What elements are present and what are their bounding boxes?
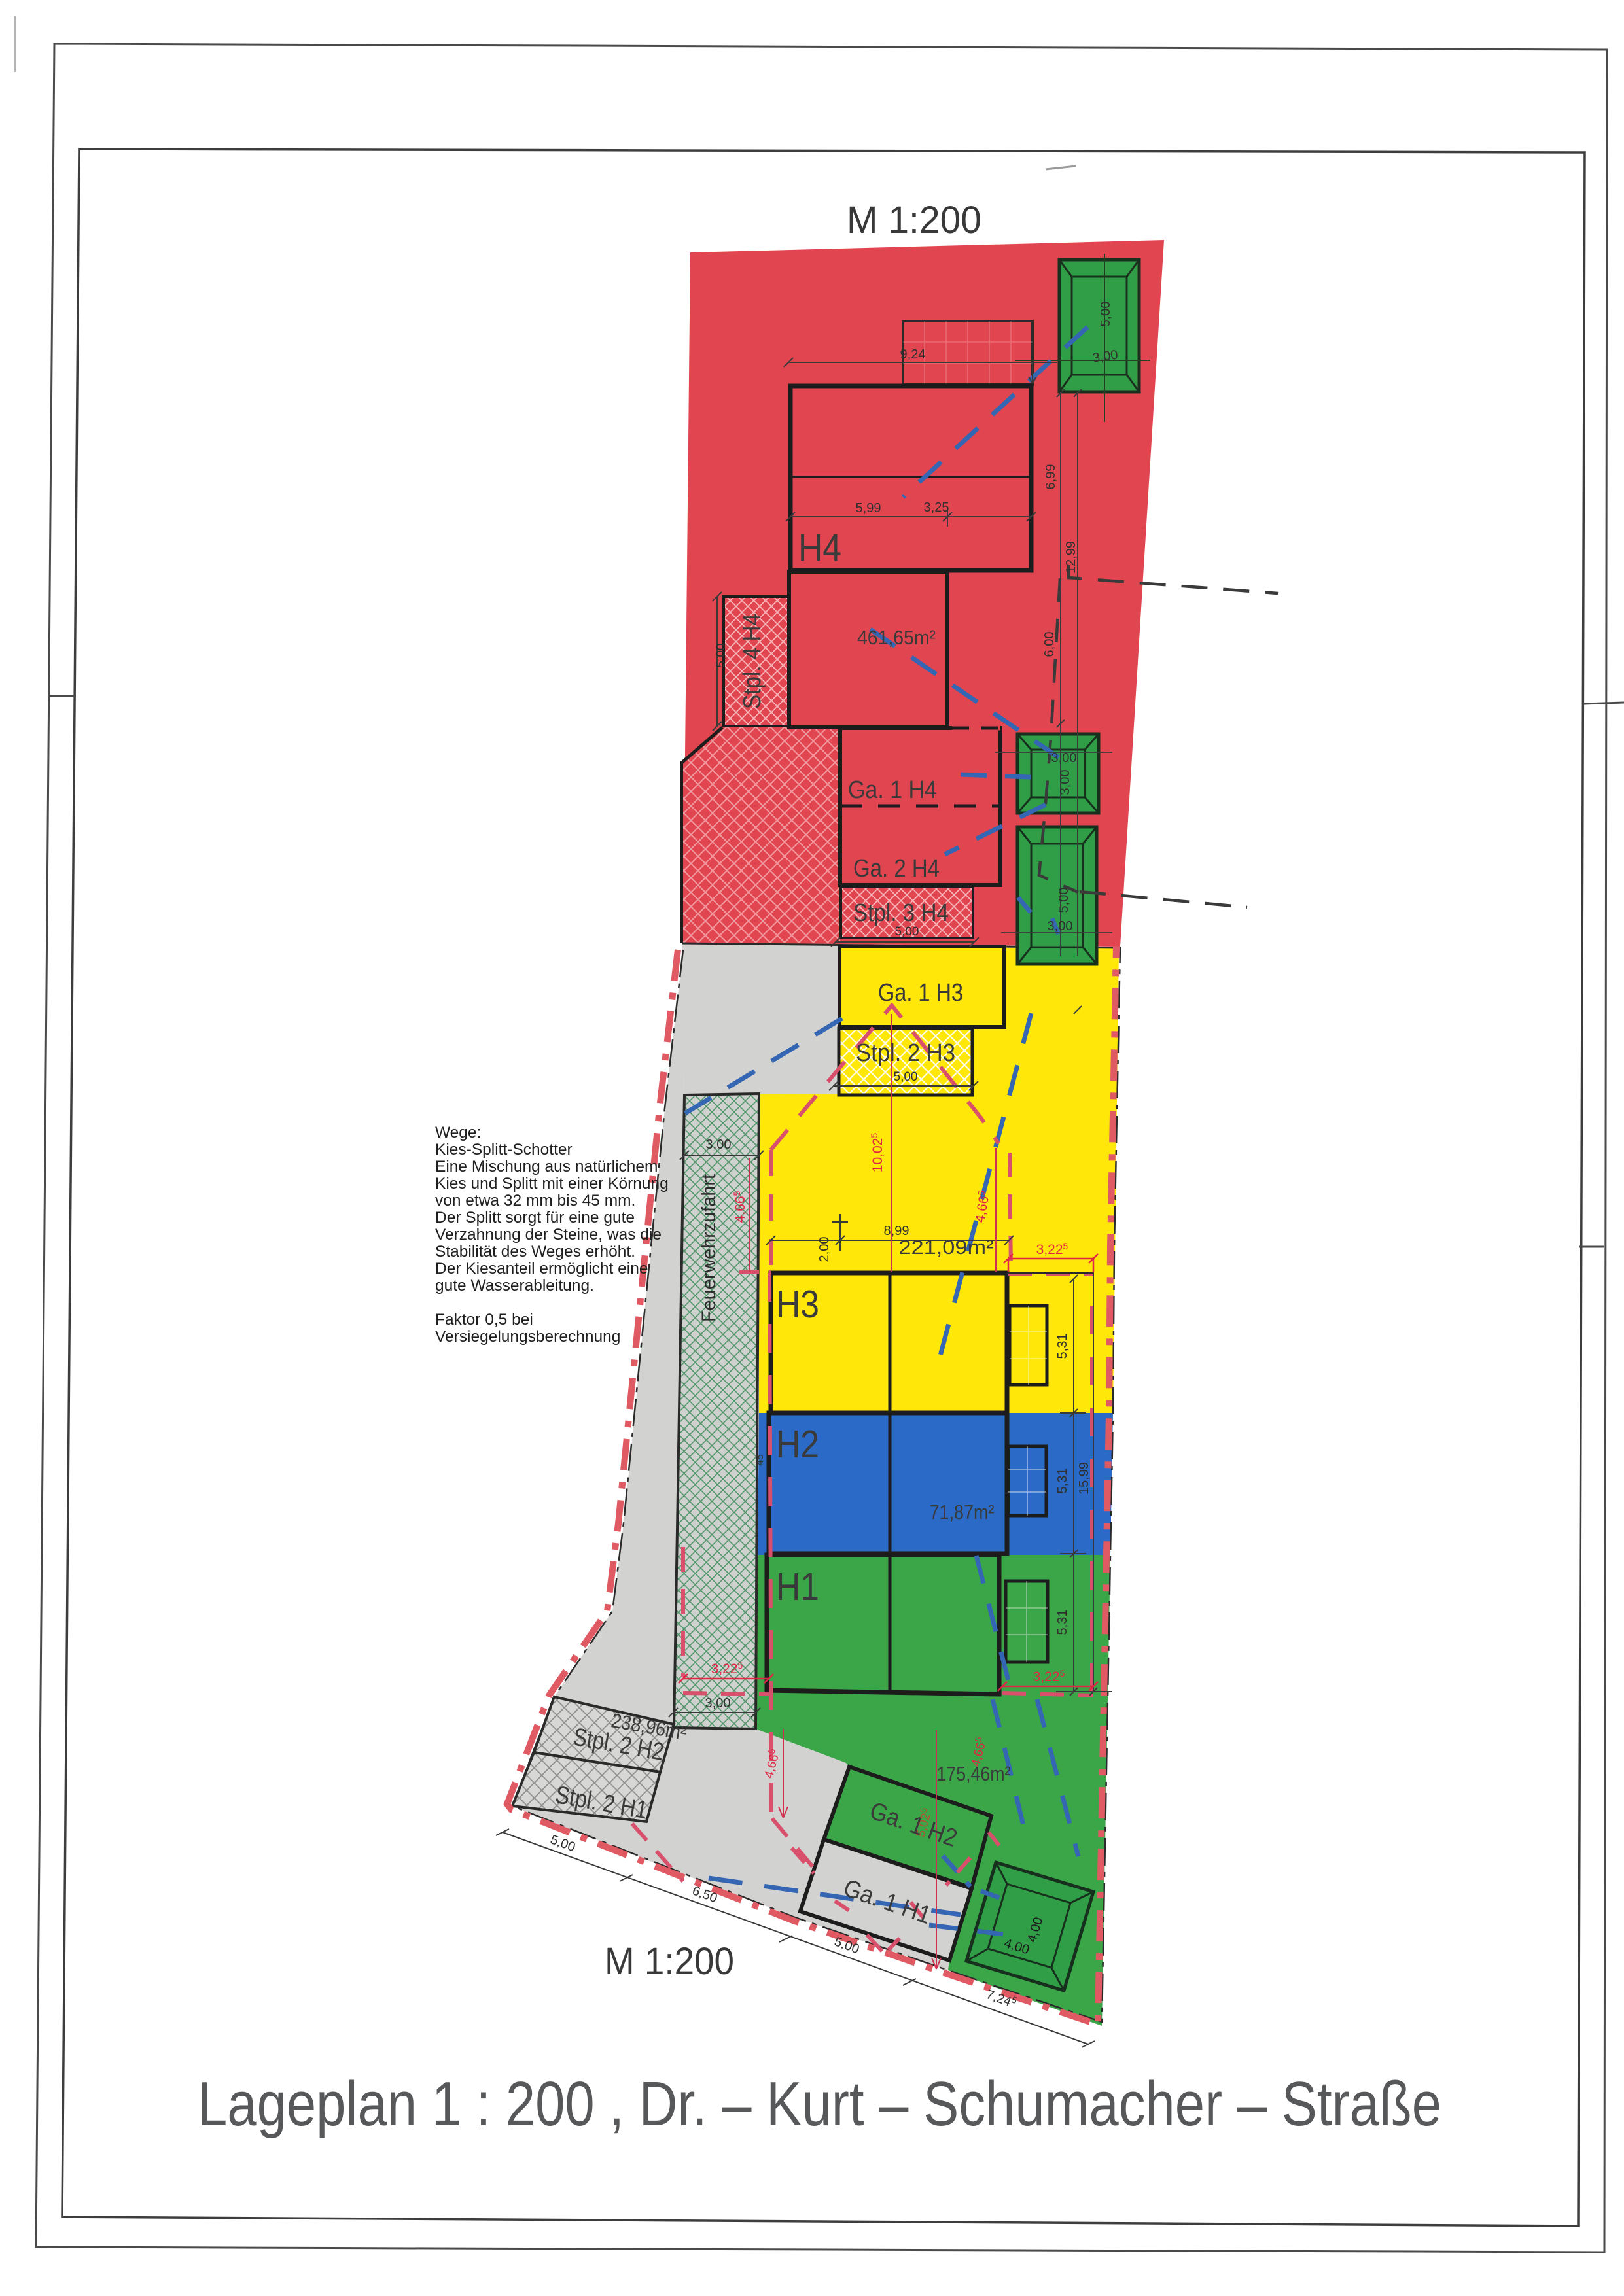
svg-text:5,00: 5,00 (895, 925, 919, 939)
svg-text:221,09m²: 221,09m² (899, 1236, 994, 1259)
svg-text:Wege:: Wege: (435, 1124, 481, 1141)
svg-text:6,00: 6,00 (1042, 632, 1057, 657)
svg-text:3,00: 3,00 (706, 1138, 732, 1152)
svg-text:Ga. 1 H3: Ga. 1 H3 (878, 979, 963, 1007)
svg-text:5,99: 5,99 (856, 501, 881, 515)
svg-text:5,31: 5,31 (1055, 1610, 1070, 1635)
svg-text:Versiegelungsberechnung: Versiegelungsberechnung (435, 1328, 620, 1346)
svg-text:5,31: 5,31 (1055, 1469, 1070, 1494)
svg-text:Kies-Splitt-Schotter: Kies-Splitt-Schotter (435, 1141, 573, 1158)
svg-text:6,99: 6,99 (1044, 464, 1058, 490)
svg-text:3,00: 3,00 (1058, 770, 1072, 795)
svg-text:3,25: 3,25 (924, 500, 949, 515)
svg-text:H2: H2 (776, 1423, 819, 1466)
svg-text:15,99: 15,99 (1077, 1462, 1091, 1495)
svg-text:10,025: 10,025 (869, 1133, 885, 1173)
svg-text:Ga. 1 H4: Ga. 1 H4 (848, 776, 937, 804)
svg-text:45: 45 (754, 1454, 766, 1466)
svg-text:71,87m²: 71,87m² (930, 1501, 995, 1523)
svg-text:9,24: 9,24 (900, 347, 926, 362)
svg-text:5,00: 5,00 (715, 644, 728, 668)
svg-text:Stpl. 2 H3: Stpl. 2 H3 (856, 1039, 955, 1067)
svg-text:12,99: 12,99 (1064, 541, 1078, 574)
svg-text:Eine Mischung aus natürlichem: Eine Mischung aus natürlichem (435, 1158, 658, 1175)
svg-text:5,00: 5,00 (1099, 302, 1113, 327)
svg-text:3,00: 3,00 (1048, 919, 1073, 933)
svg-text:gute Wasserableitung.: gute Wasserableitung. (435, 1277, 594, 1295)
svg-text:461,65m²: 461,65m² (857, 626, 936, 649)
svg-text:Ga. 2 H4: Ga. 2 H4 (853, 855, 940, 882)
svg-text:H4: H4 (798, 527, 841, 570)
svg-text:Der Kiesanteil ermöglicht eine: Der Kiesanteil ermöglicht eine (435, 1260, 648, 1278)
svg-text:Kies und Splitt mit einer Körn: Kies und Splitt mit einer Körnung (435, 1175, 669, 1192)
svg-text:2,00: 2,00 (817, 1237, 832, 1262)
svg-text:M 1:200: M 1:200 (605, 1940, 734, 1983)
svg-text:Lageplan 1 : 200 , Dr. – Kurt: Lageplan 1 : 200 , Dr. – Kurt – Schumach… (198, 2069, 1441, 2139)
svg-text:175,46m²: 175,46m² (937, 1762, 1011, 1785)
svg-text:Verzahnung der Steine, was die: Verzahnung der Steine, was die (435, 1226, 662, 1244)
svg-text:5,00: 5,00 (1057, 888, 1071, 913)
svg-text:Stabilität des Weges erhöht.: Stabilität des Weges erhöht. (435, 1243, 635, 1261)
svg-text:5,00: 5,00 (894, 1070, 918, 1084)
svg-text:Feuerwehrzufahrt: Feuerwehrzufahrt (698, 1174, 720, 1322)
svg-text:Stpl. 3 H4: Stpl. 3 H4 (853, 899, 949, 927)
svg-text:Faktor 0,5 bei: Faktor 0,5 bei (435, 1311, 533, 1329)
svg-text:H1: H1 (776, 1565, 819, 1609)
svg-text:3,00: 3,00 (705, 1696, 731, 1711)
svg-text:Stpl. 4 H4: Stpl. 4 H4 (739, 614, 766, 709)
svg-text:M 1:200: M 1:200 (847, 199, 981, 241)
svg-text:von etwa 32 mm bis 45 mm.: von etwa 32 mm bis 45 mm. (435, 1192, 635, 1209)
svg-text:Der Splitt sorgt für eine gute: Der Splitt sorgt für eine gute (435, 1209, 635, 1226)
svg-text:3,00: 3,00 (1051, 751, 1077, 765)
svg-text:H3: H3 (776, 1283, 819, 1326)
svg-text:5,31: 5,31 (1055, 1334, 1070, 1359)
